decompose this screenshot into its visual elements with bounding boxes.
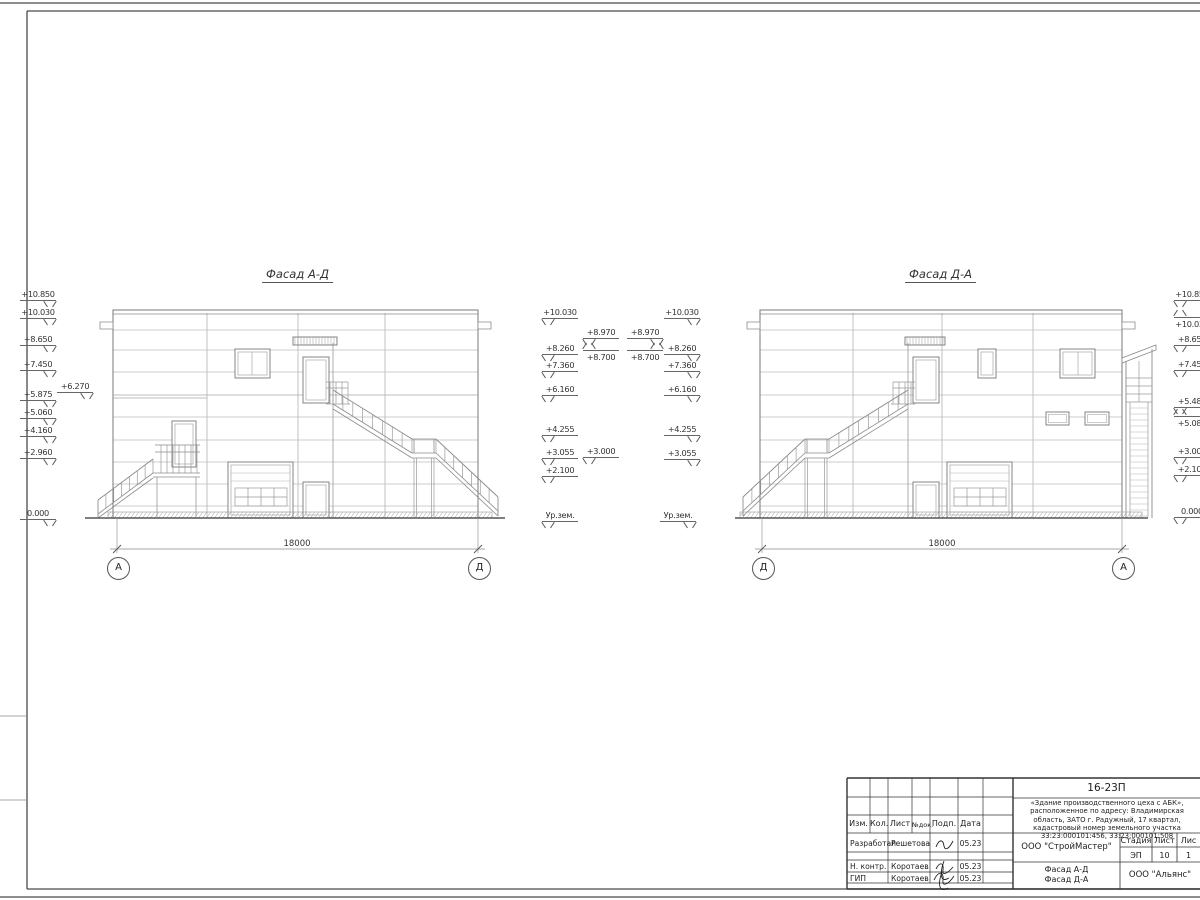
elevation-mark: +8.700: [583, 350, 619, 363]
elevation-mark: +10.850: [20, 288, 56, 301]
project-description: «Здание производственного цеха с АБК», р…: [1016, 799, 1198, 840]
elevation-mark: +2.100: [542, 464, 578, 477]
elevation-mark: +3.055: [542, 446, 578, 459]
elevation-mark: Ур.зем.: [660, 509, 696, 522]
facade-ad-title: Фасад А-Д: [250, 267, 345, 283]
axis-bubble-a-left: А: [107, 557, 130, 580]
row-role: ГИП: [850, 874, 887, 883]
facade-da-drawing: [735, 310, 1156, 553]
axis-bubble-d-right: Д: [752, 557, 775, 580]
row-role: Н. контр.: [850, 862, 887, 871]
elevation-mark: +10.030: [1174, 317, 1200, 330]
facade-da-dimension: 18000: [920, 539, 964, 549]
elevation-mark: +4.255: [664, 423, 700, 436]
elevation-mark: +8.700: [627, 350, 663, 363]
elevation-mark: Ур.зем.: [542, 509, 578, 522]
sheet-title: Фасад А-Д Фасад Д-А: [1013, 865, 1120, 884]
elevation-mark: +10.850: [1174, 288, 1200, 301]
sheet-label: Лист: [1152, 836, 1177, 845]
elevation-mark: +8.260: [542, 342, 578, 355]
elevation-mark: +5.485: [1174, 395, 1200, 408]
facade-ad-dimension: 18000: [275, 539, 319, 549]
elevation-mark: +6.160: [664, 383, 700, 396]
elevation-mark: +8.260: [664, 342, 700, 355]
elevation-mark: 0.000: [20, 507, 56, 520]
elevation-mark: +2.960: [20, 446, 56, 459]
sheet-number: 10: [1152, 851, 1177, 860]
elevation-mark: +2.100: [1174, 463, 1200, 476]
stage-value: ЭП: [1120, 851, 1152, 860]
elevation-mark: +6.270: [57, 380, 93, 393]
elevation-mark: +8.970: [583, 326, 619, 339]
sheets-label: Лис: [1177, 836, 1200, 845]
elevation-mark: +5.875: [20, 388, 56, 401]
row-date: 05.23: [959, 862, 982, 871]
col-kol: Кол.: [870, 819, 888, 828]
col-izm: Изм.: [847, 819, 870, 828]
elevation-mark: +10.030: [664, 306, 700, 319]
elevation-mark: +10.030: [542, 306, 578, 319]
elevation-mark: +4.160: [20, 424, 56, 437]
row-name: Коротаев: [891, 874, 929, 883]
axis-bubble-d-left: Д: [468, 557, 491, 580]
elevation-mark: +10.030: [20, 306, 56, 319]
elevation-mark: +7.450: [20, 358, 56, 371]
row-name: Решетова: [891, 839, 929, 848]
elevation-mark: +8.650: [20, 333, 56, 346]
elevation-mark: +8.650: [1174, 333, 1200, 346]
elevation-mark: +4.255: [542, 423, 578, 436]
elevation-mark: 0.000: [1174, 505, 1200, 518]
col-ndok: №док.: [912, 821, 930, 829]
axis-bubble-a-right: А: [1112, 557, 1135, 580]
row-date: 05.23: [959, 839, 982, 848]
facade-ad-drawing: [85, 310, 505, 553]
sheets-total: 1: [1177, 851, 1200, 860]
facade-da-title: Фасад Д-А: [893, 267, 988, 283]
elevation-mark: +7.450: [1174, 358, 1200, 371]
elevation-mark: +3.000: [1174, 445, 1200, 458]
elevation-mark: +8.970: [627, 326, 663, 339]
contractor-org: ООО "Альянс": [1120, 870, 1200, 880]
col-podp: Подп.: [930, 819, 958, 828]
row-name: Коротаев: [891, 862, 929, 871]
drawing-sheet: Фасад А-Д Фасад Д-А 18000 18000 А Д Д А …: [0, 0, 1200, 900]
elevation-mark: +3.000: [583, 445, 619, 458]
signatures: [934, 841, 954, 890]
elevation-mark: +6.160: [542, 383, 578, 396]
sheet-title-line1: Фасад А-Д: [1013, 865, 1120, 875]
row-role: Разработал: [850, 839, 887, 848]
col-data: Дата: [958, 819, 983, 828]
document-code: 16-23П: [1013, 780, 1200, 797]
elevation-mark: +7.360: [542, 359, 578, 372]
row-date: 05.23: [959, 874, 982, 883]
elevation-mark: +3.055: [664, 447, 700, 460]
elevation-mark: +5.060: [20, 406, 56, 419]
col-list: Лист: [888, 819, 912, 828]
design-org: ООО "СтройМастер": [1013, 842, 1120, 852]
elevation-mark: +7.360: [664, 359, 700, 372]
sheet-title-line2: Фасад Д-А: [1013, 875, 1120, 885]
stage-label: Стадия: [1120, 836, 1152, 845]
elevation-mark: +5.080: [1174, 416, 1200, 429]
